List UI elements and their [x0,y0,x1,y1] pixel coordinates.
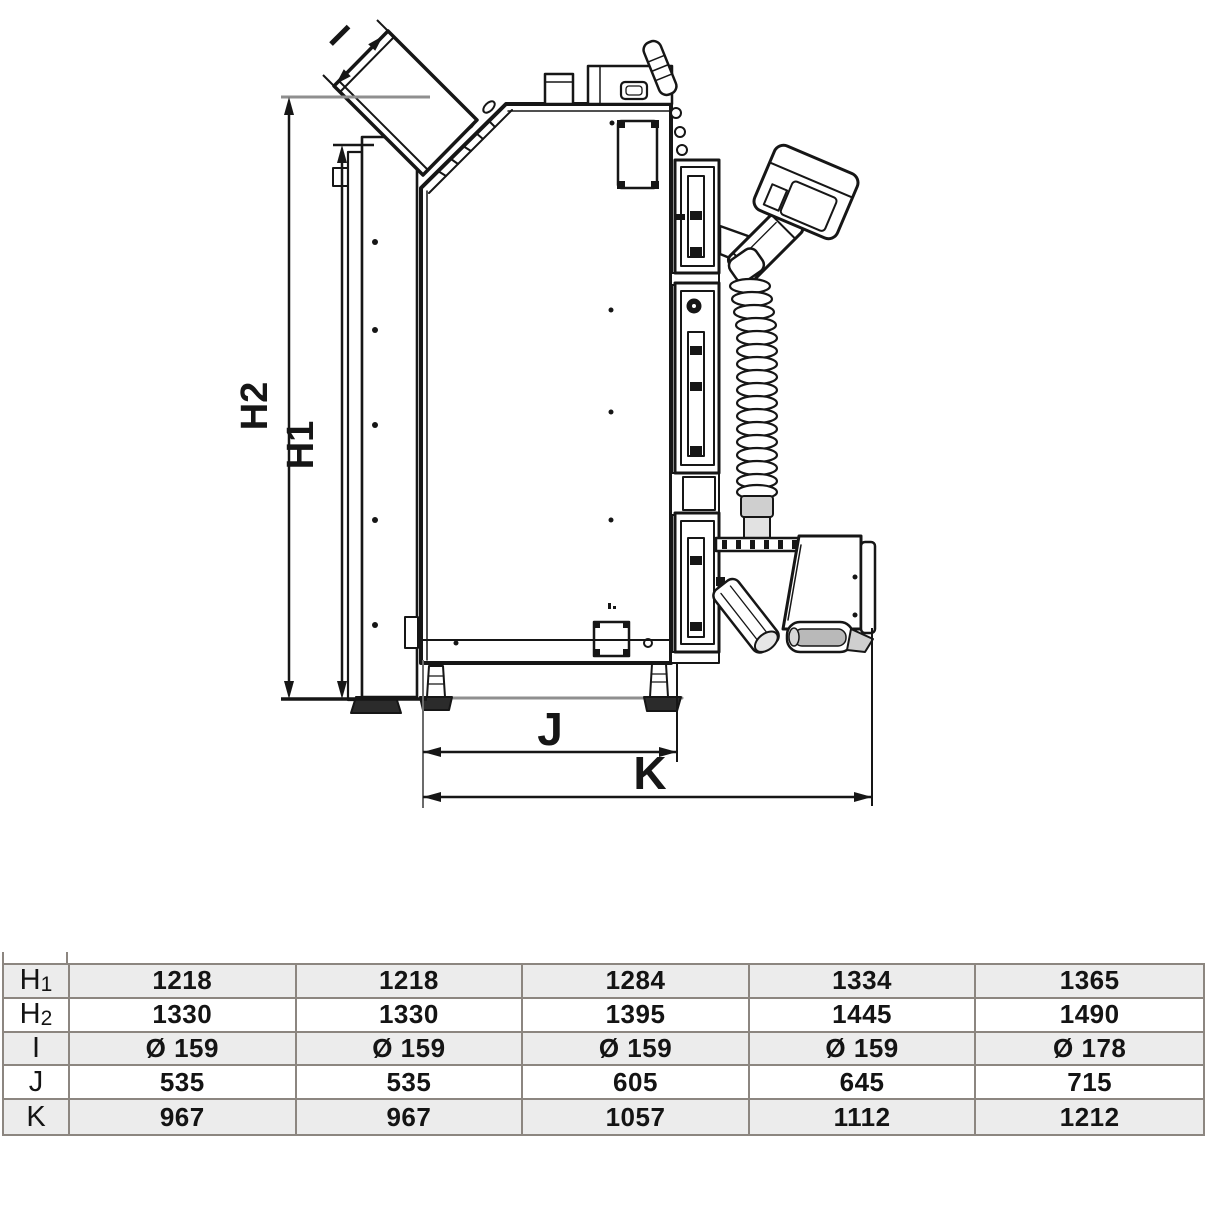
dim-label-h1: H1 [280,421,322,470]
upper-hatch-cover [617,120,659,189]
table-cell: 1218 [297,965,524,997]
lower-access-panel [593,621,630,656]
upper-door [675,160,719,273]
dimension-table: H112181218128413341365H21330133013951445… [2,963,1205,1136]
boiler-body-group [333,31,875,713]
table-cell: 967 [70,1100,297,1134]
row-label-main: K [26,1101,45,1134]
row-label: K [4,1100,70,1134]
table-cell: 535 [297,1066,524,1098]
row-label-main: H [20,965,41,997]
dim-label-i: I [322,17,358,53]
table-cell: 1218 [70,965,297,997]
table-cell: 1365 [976,965,1203,997]
table-cell: 1330 [297,999,524,1031]
rear-foot-pad [644,697,681,711]
dim-label-j: J [537,703,563,755]
table-cell: 535 [70,1066,297,1098]
table-cell: Ø 159 [750,1033,977,1065]
boiler-side-view-drawing: H2 H1 I J [0,0,1214,880]
row-label: H1 [4,965,70,997]
table-row: H213301330139514451490 [4,999,1203,1033]
flexible-feed-hose [726,245,777,538]
table-cell: 1490 [976,999,1203,1031]
table-cell: 1330 [70,999,297,1031]
table-cell: Ø 178 [976,1033,1203,1065]
table-cell: Ø 159 [523,1033,750,1065]
table-row: J535535605645715 [4,1066,1203,1100]
table-cell: 1112 [750,1100,977,1134]
dim-label-h2: H2 [234,382,276,431]
row-label: I [4,1033,70,1065]
table-cell: Ø 159 [70,1033,297,1065]
table-cell: 715 [976,1066,1203,1098]
row-label-sub: 1 [41,974,53,997]
top-collar [545,74,573,104]
table-cell: 1395 [523,999,750,1031]
table-cell: 605 [523,1066,750,1098]
burner-drop-chute [710,576,783,658]
row-label: H2 [4,999,70,1031]
table-cell: 1334 [750,965,977,997]
row-label-main: H [20,999,41,1031]
boiler-dimension-sheet: H2 H1 I J [0,0,1214,1214]
table-cell: 1057 [523,1100,750,1134]
hose-adapter [741,496,773,517]
row-label-main: J [29,1066,44,1098]
table-border-tick [2,952,4,963]
table-row: IØ 159Ø 159Ø 159Ø 159Ø 178 [4,1033,1203,1067]
dim-label-k: K [633,747,666,799]
table-cell: 1284 [523,965,750,997]
table-cell: Ø 159 [297,1033,524,1065]
table-border-tick [66,952,68,963]
middle-door [675,283,719,473]
table-cell: 645 [750,1066,977,1098]
table-cell: 1445 [750,999,977,1031]
row-label-main: I [32,1033,40,1065]
left-side-bracket [405,617,418,648]
table-row: K967967105711121212 [4,1100,1203,1134]
table-cell: 1212 [976,1100,1203,1134]
table-row: H112181218128413341365 [4,965,1203,999]
lower-door [675,513,719,652]
table-cell: 967 [297,1100,524,1134]
row-label: J [4,1066,70,1098]
row-label-sub: 2 [41,1008,53,1031]
